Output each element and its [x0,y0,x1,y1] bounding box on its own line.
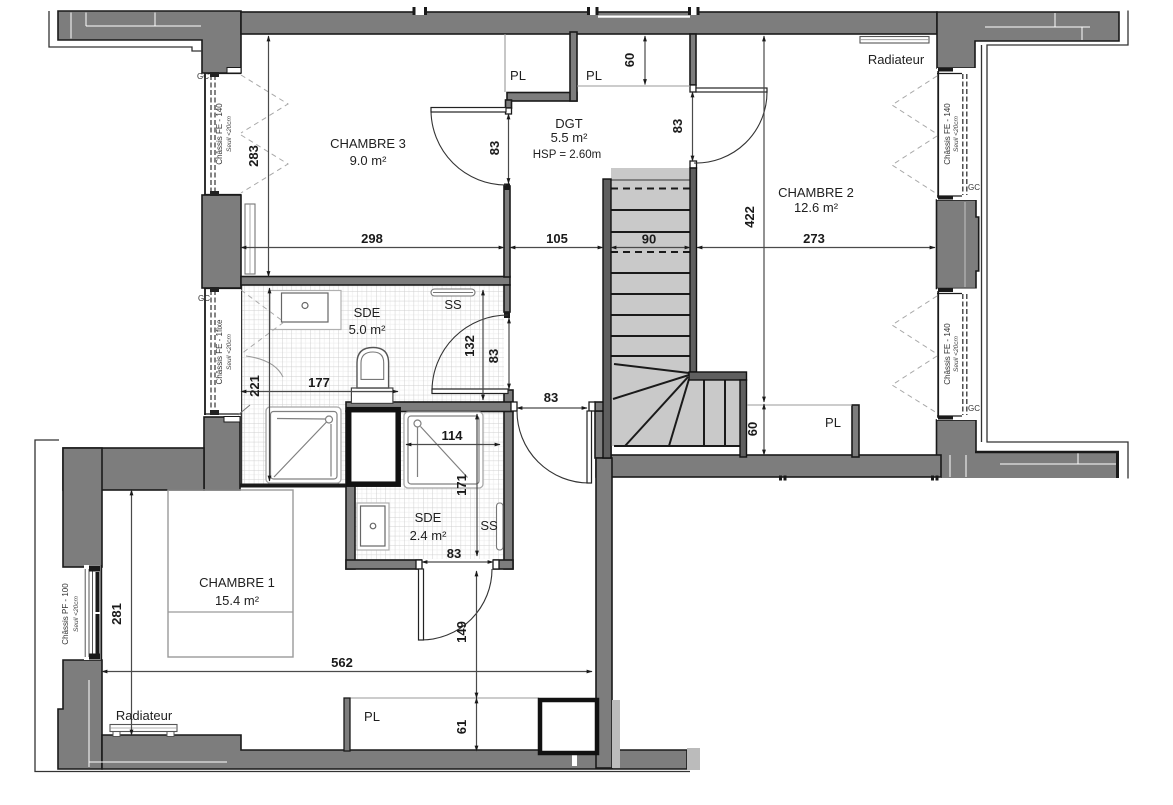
svg-text:221: 221 [247,375,262,397]
svg-text:Radiateur: Radiateur [868,52,925,67]
svg-text:281: 281 [109,603,124,625]
svg-text:Seuil <20cm: Seuil <20cm [953,335,960,372]
svg-text:177: 177 [308,375,330,390]
svg-text:273: 273 [803,231,825,246]
svg-text:283: 283 [246,145,261,167]
svg-text:PL: PL [510,68,526,83]
svg-text:5.5 m²: 5.5 m² [551,130,589,145]
svg-text:GC: GC [968,183,980,192]
svg-text:15.4 m²: 15.4 m² [215,593,260,608]
svg-text:Châssis FE - 140: Châssis FE - 140 [943,103,952,165]
svg-text:SDE: SDE [354,305,381,320]
svg-text:105: 105 [546,231,568,246]
svg-text:Châssis PF - 100: Châssis PF - 100 [61,583,70,645]
svg-text:Seuil <20cm: Seuil <20cm [953,115,960,152]
svg-text:5.0 m²: 5.0 m² [349,322,387,337]
svg-text:2.4 m²: 2.4 m² [410,528,448,543]
svg-text:60: 60 [745,422,760,436]
svg-text:Seuil <20cm: Seuil <20cm [226,115,233,152]
svg-text:GC: GC [198,294,210,303]
svg-text:SS: SS [444,297,462,312]
svg-text:83: 83 [487,141,502,155]
svg-text:60: 60 [622,53,637,67]
svg-text:HSP = 2.60m: HSP = 2.60m [533,149,602,161]
svg-text:GC: GC [968,404,980,413]
svg-text:171: 171 [454,474,469,496]
svg-text:298: 298 [361,231,383,246]
svg-text:Châssis FE - 140: Châssis FE - 140 [943,323,952,385]
svg-text:83: 83 [447,546,461,561]
svg-text:Radiateur: Radiateur [116,708,173,723]
svg-text:61: 61 [454,720,469,734]
svg-text:83: 83 [486,349,501,363]
svg-text:PL: PL [586,68,602,83]
svg-text:9.0 m²: 9.0 m² [350,153,388,168]
svg-text:SDE: SDE [415,510,442,525]
svg-text:SS: SS [480,518,498,533]
svg-text:149: 149 [454,621,469,643]
svg-text:90: 90 [642,232,656,247]
svg-text:PL: PL [825,415,841,430]
svg-text:83: 83 [544,390,558,405]
svg-text:Seuil <20cm: Seuil <20cm [73,595,80,632]
svg-text:12.6 m²: 12.6 m² [794,200,839,215]
svg-text:CHAMBRE 3: CHAMBRE 3 [330,136,406,151]
svg-text:114: 114 [442,428,464,443]
svg-text:422: 422 [742,206,757,228]
svg-text:83: 83 [670,119,685,133]
svg-text:CHAMBRE 1: CHAMBRE 1 [199,575,275,590]
svg-text:DGT: DGT [555,116,583,131]
svg-text:Châssis FE - 140: Châssis FE - 140 [215,103,224,165]
svg-text:GC: GC [197,72,209,81]
svg-text:PL: PL [364,709,380,724]
svg-text:562: 562 [331,655,353,670]
svg-text:CHAMBRE 2: CHAMBRE 2 [778,185,854,200]
svg-text:132: 132 [462,335,477,357]
svg-text:Seuil <20cm: Seuil <20cm [226,333,233,370]
svg-text:Châssis FE - 1fixe: Châssis FE - 1fixe [215,319,224,384]
